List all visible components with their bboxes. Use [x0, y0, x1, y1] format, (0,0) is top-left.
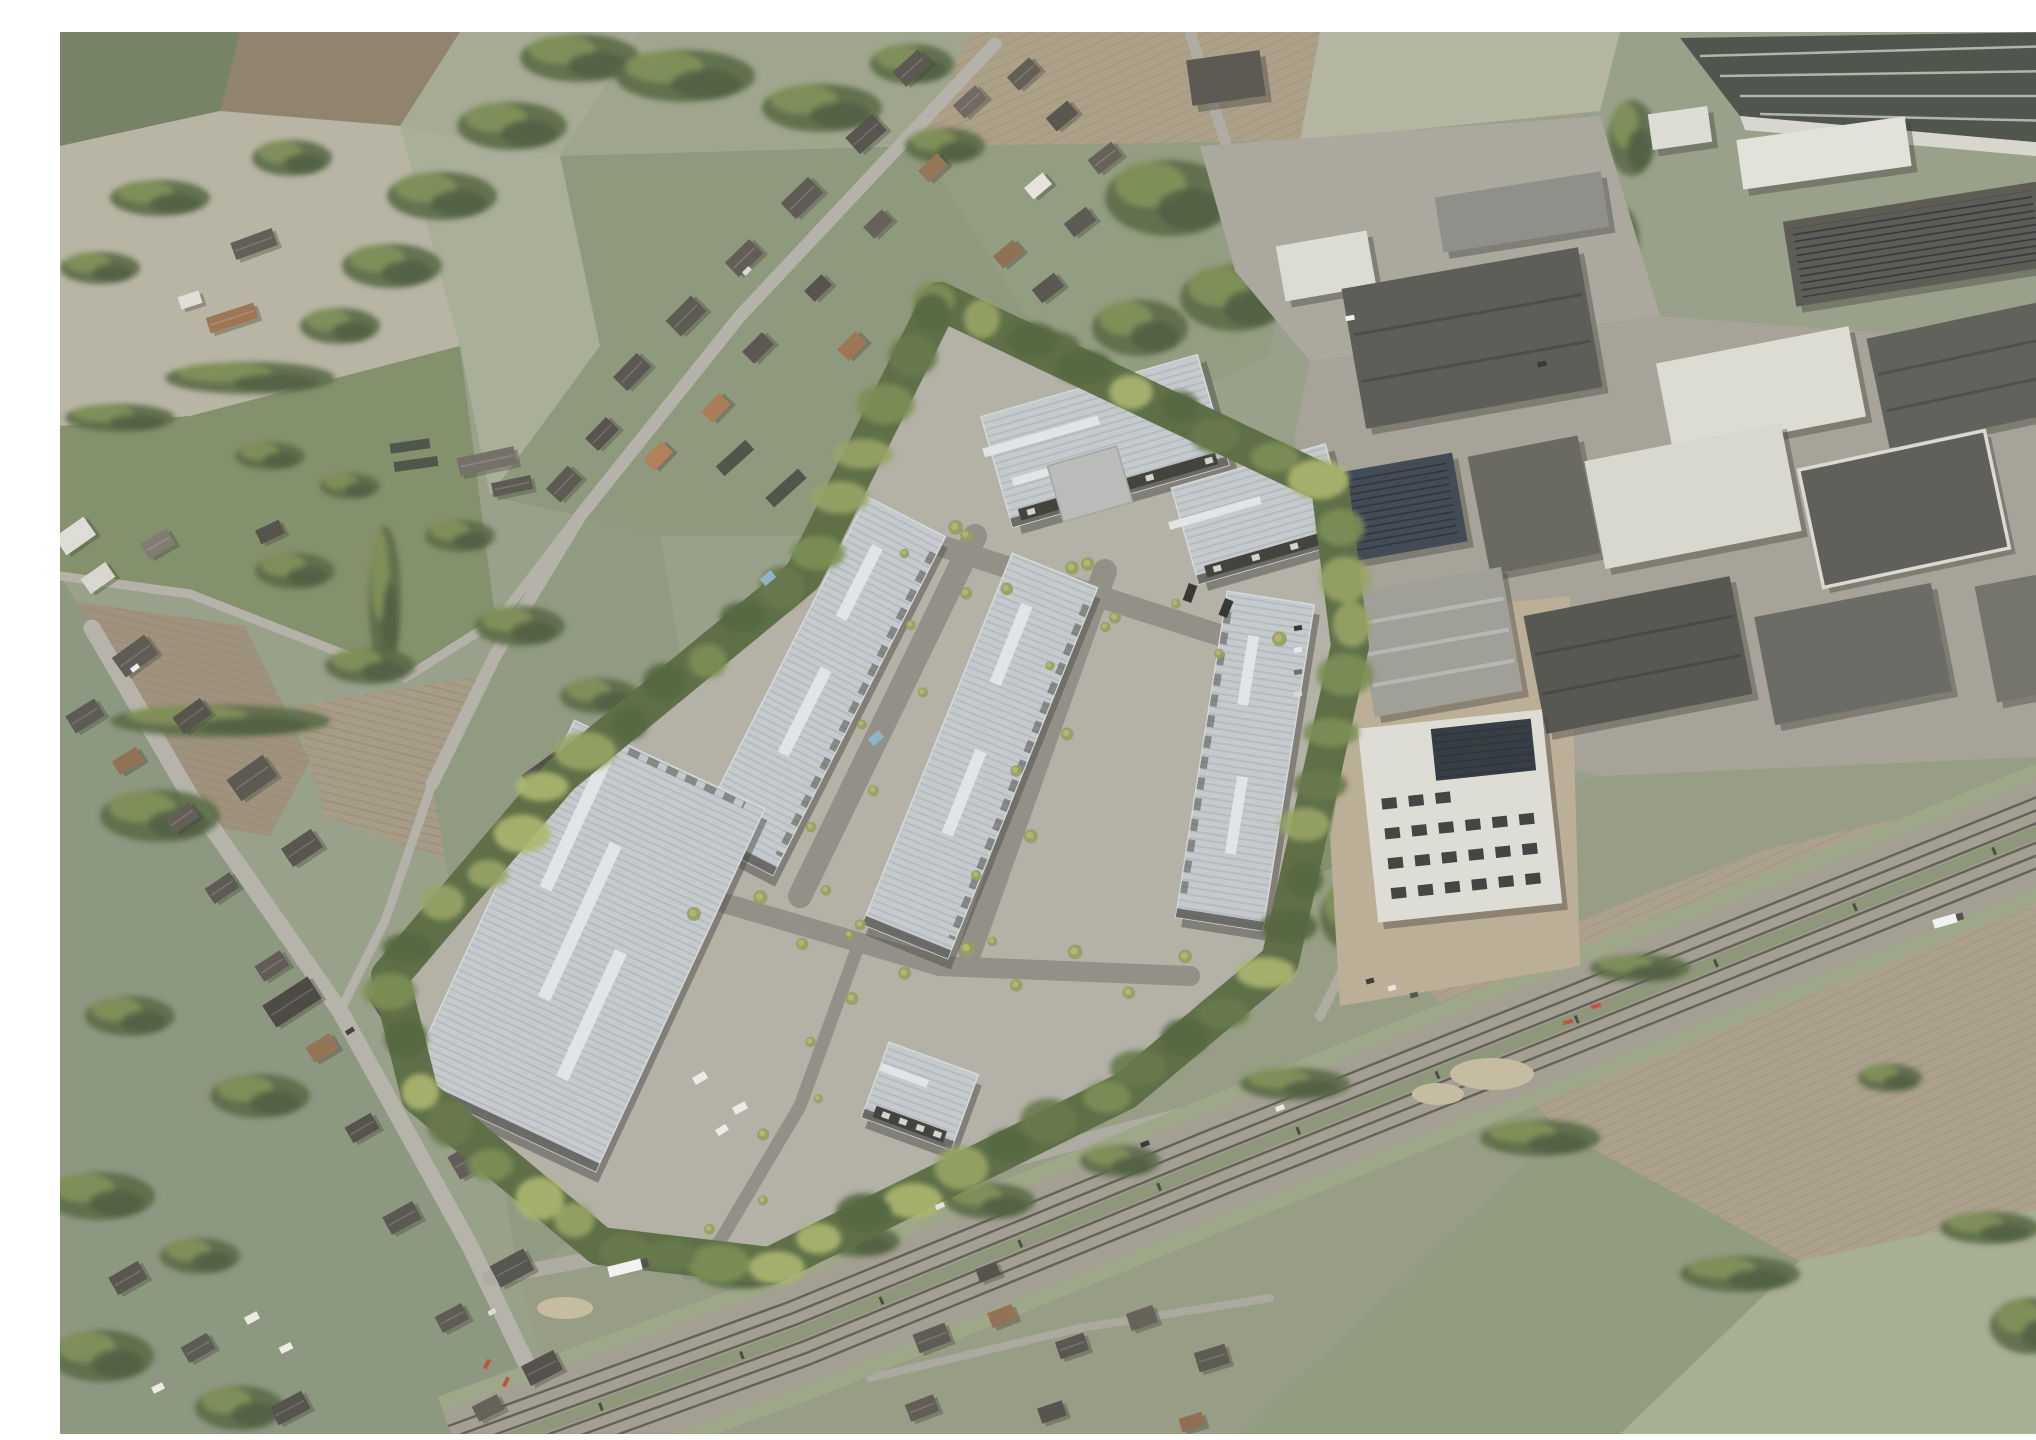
- aerial-photomontage: [60, 32, 2036, 1434]
- photo-haze: [60, 32, 2036, 1434]
- photo-frame: [40, 16, 2036, 1440]
